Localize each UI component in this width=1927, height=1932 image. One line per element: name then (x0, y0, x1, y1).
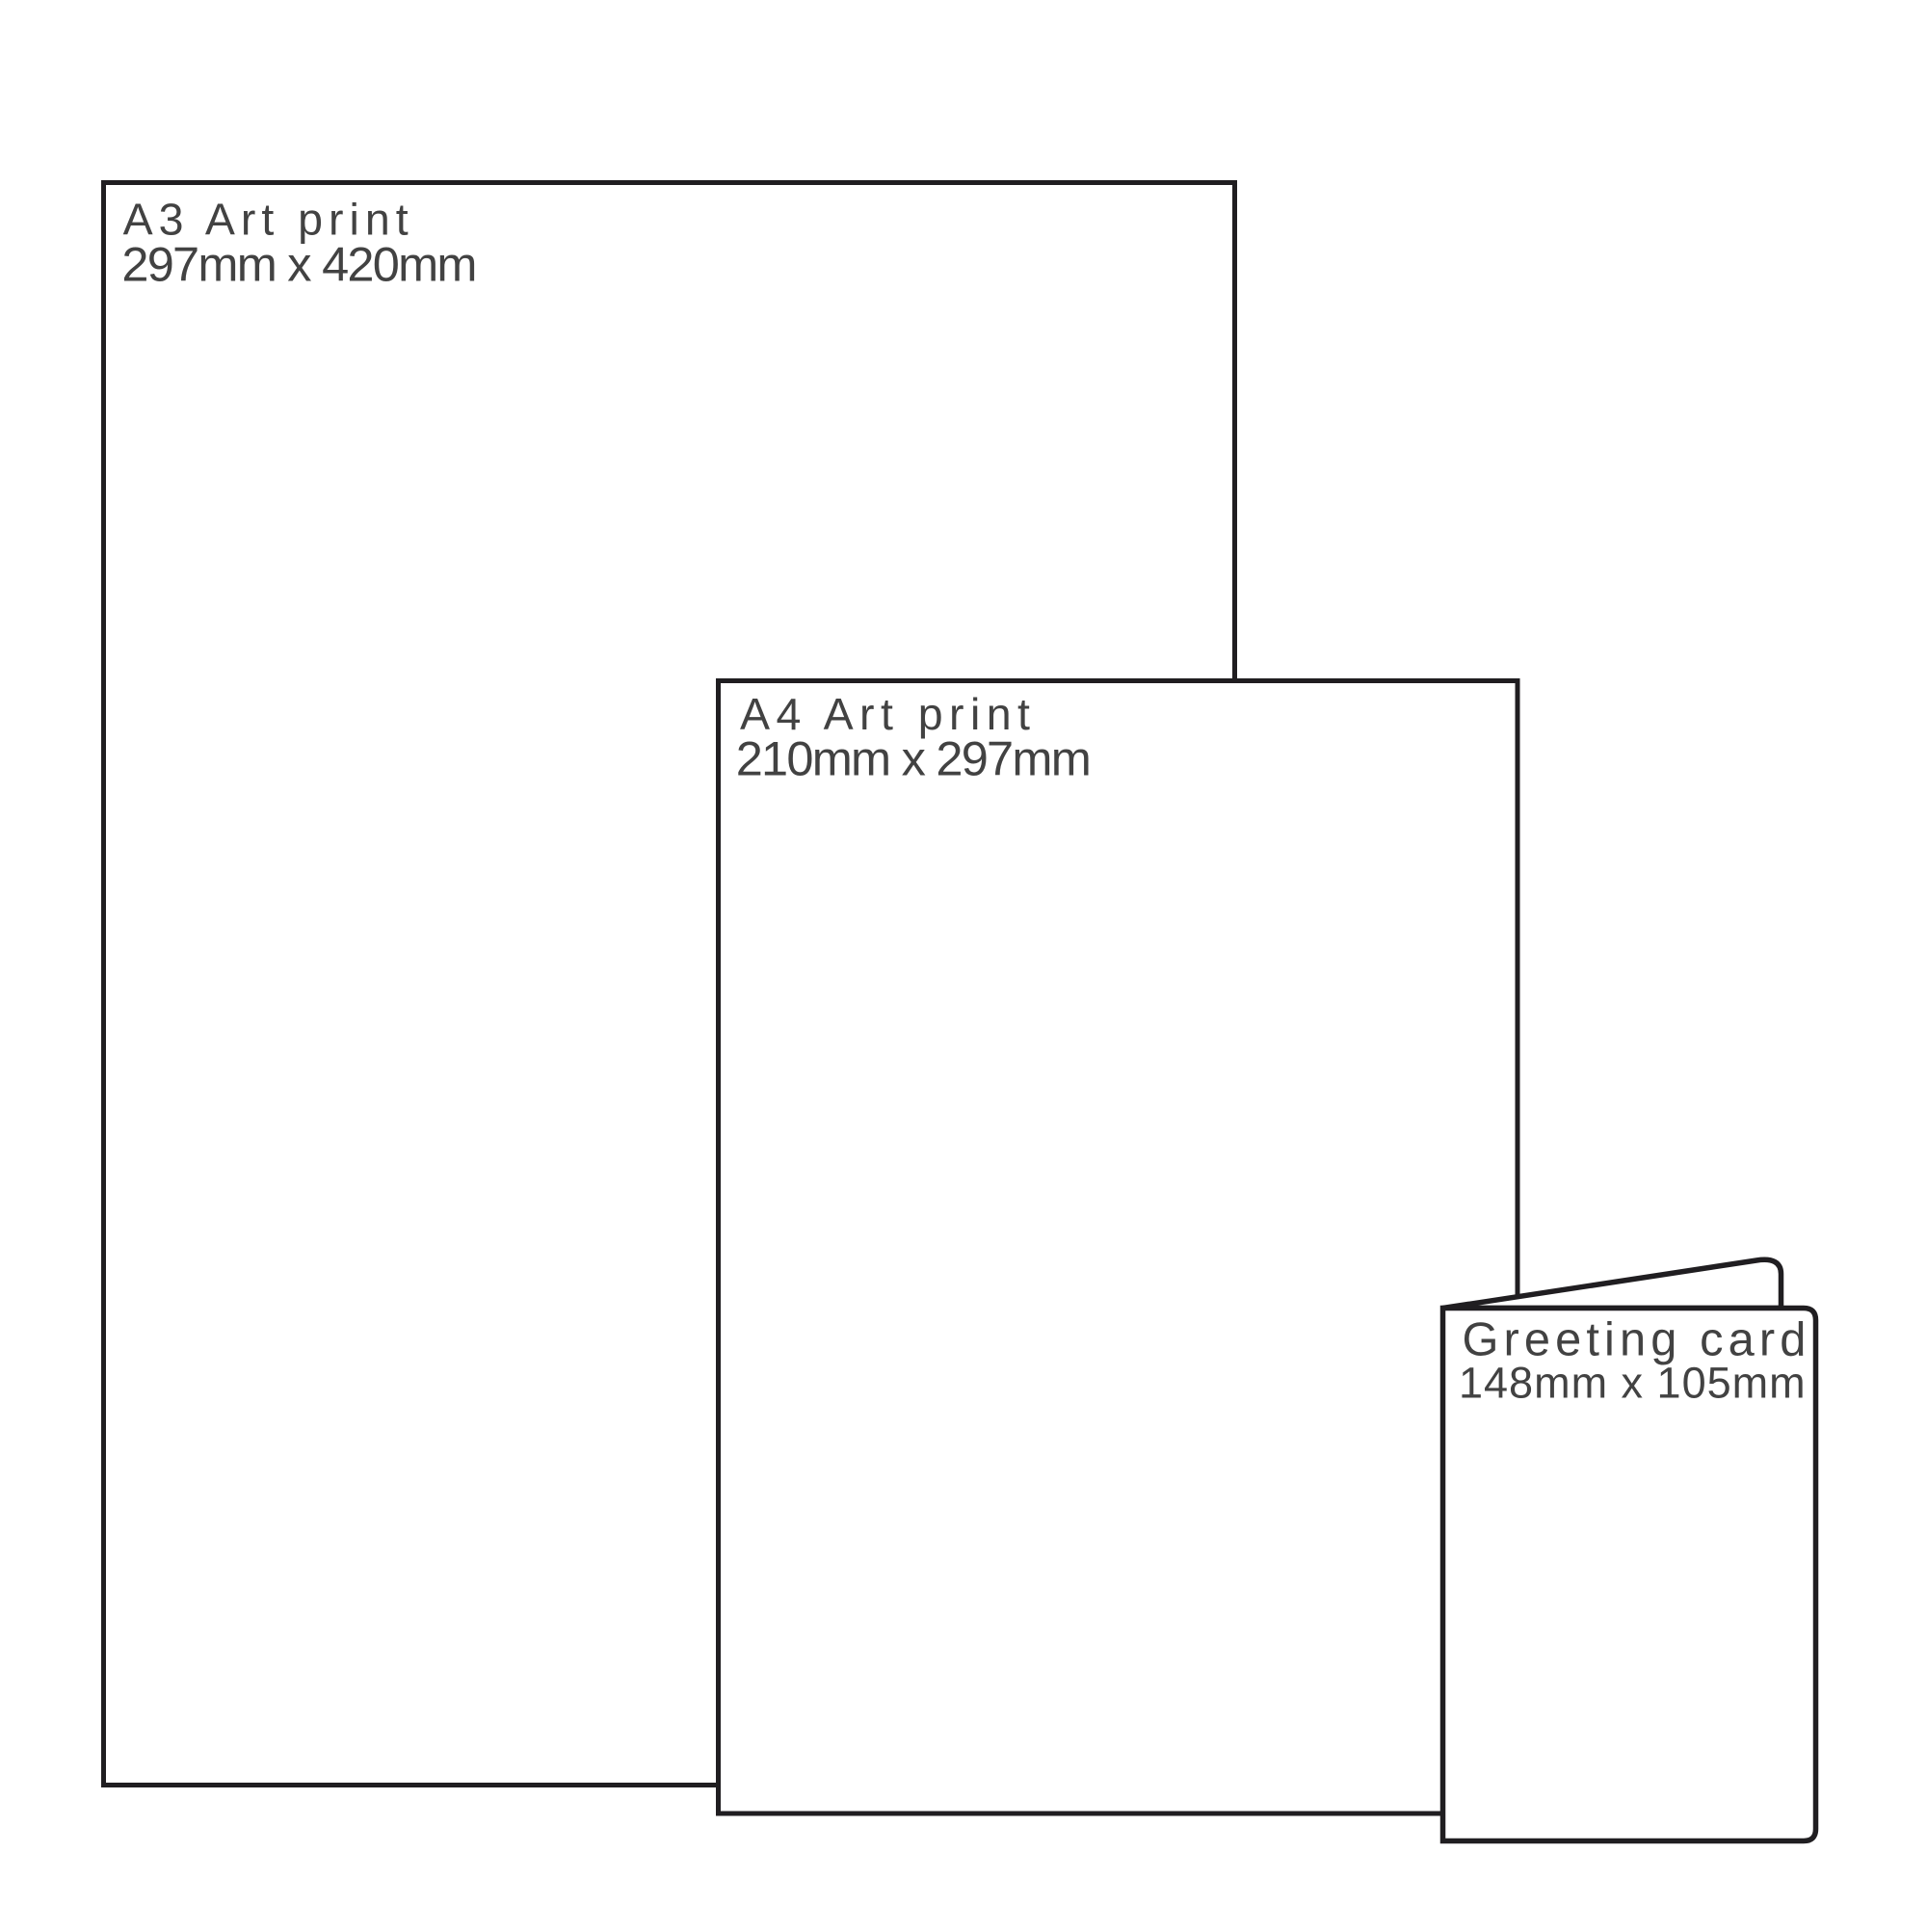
svg-text:148mm x 105mm: 148mm x 105mm (1459, 1359, 1807, 1408)
svg-text:297mm x 420mm: 297mm x 420mm (121, 236, 475, 291)
svg-text:210mm x 297mm: 210mm x 297mm (736, 731, 1090, 786)
